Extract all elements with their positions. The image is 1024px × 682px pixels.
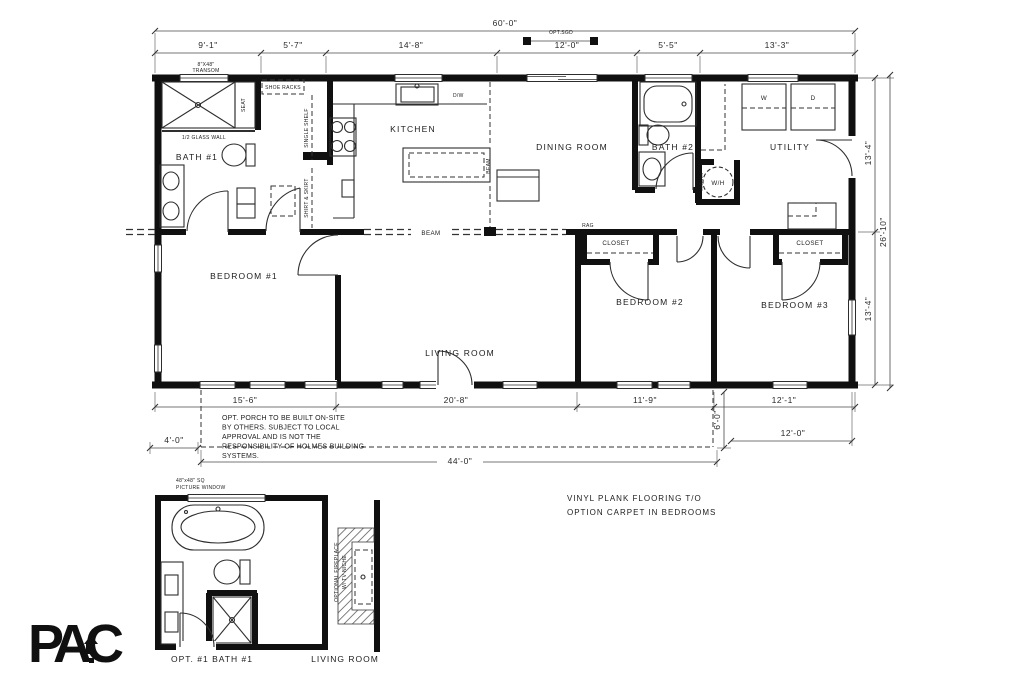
bedroom1-door [298, 235, 338, 275]
porch-note-line1: OPT. PORCH TO BE BUILT ON-SITE [222, 415, 345, 422]
seat-label: SEAT [241, 98, 247, 112]
shirt-skirt-label: SHIRT & SKIRT [304, 178, 310, 217]
single-shelf-label: SINGLE SHELF [304, 108, 310, 147]
dim-right-bottom: 13'-4" [863, 297, 873, 322]
beam-vertical-label: BEAM [486, 158, 492, 173]
porch-note-line4: RESPONSIBILITY OF HOLMES BUILDING [222, 444, 364, 451]
dim-bottom-seg2: 20'-8" [444, 395, 469, 405]
rag-label: RAG [582, 223, 594, 229]
top-dimensions: 60'-0" 9'-1" 5'-7" 14'-8" 12'-0" 5'-5" 1… [152, 18, 858, 73]
porch-note: OPT. PORCH TO BE BUILT ON-SITE BY OTHERS… [222, 415, 364, 460]
dim-patio-depth: 6'-0" [712, 410, 722, 429]
room-label-living: LIVING ROOM [425, 348, 495, 358]
flooring-note-line2: OPTION CARPET IN BEDROOMS [567, 508, 716, 517]
floor-plan-drawing: BATH #1 KITCHEN DINING ROOM BATH #2 UTIL… [0, 0, 1024, 682]
dim-top-seg6: 13'-3" [765, 40, 790, 50]
logo-house-dot-icon [89, 658, 94, 663]
bedroom3-door [718, 236, 750, 268]
bedroom2-door [677, 236, 703, 262]
fireplace-label-line1: OPTIONAL FIREPLACE [334, 542, 340, 602]
washer-label: W [761, 95, 767, 102]
room-label-kitchen: KITCHEN [390, 124, 436, 134]
kitchen-fixtures [330, 84, 539, 218]
shoe-racks-label: SHOE RACKS [265, 85, 301, 91]
shelves-label: SHELVES [699, 173, 704, 191]
room-label-bedroom1: BEDROOM #1 [210, 271, 278, 281]
picture-window-label-line2: PICTURE WINDOW [176, 485, 225, 491]
room-label-bath2: BATH #2 [652, 142, 694, 152]
porch-note-line3: APPROVAL AND IS NOT THE [222, 434, 321, 441]
dim-top-seg4: 12'-0" [555, 40, 580, 50]
dim-top-seg3: 14'-8" [399, 40, 424, 50]
room-label-bedroom3: BEDROOM #3 [761, 300, 829, 310]
interior-walls [158, 78, 852, 385]
picture-window-label-line1: 48"x48" SQ [176, 478, 205, 484]
porch-note-line2: BY OTHERS. SUBJECT TO LOCAL [222, 425, 340, 432]
bath1-door [187, 191, 228, 232]
right-dimensions: 13'-4" 13'-4" 26'-10" [858, 72, 894, 391]
utility-exterior-door [816, 136, 857, 178]
opt-bath-detail: 48"x48" SQ PICTURE WINDOW [158, 478, 325, 664]
optional-sliding-glass-door [527, 73, 597, 83]
porch-note-line5: SYSTEMS. [222, 453, 259, 460]
bath2-fixtures [639, 82, 696, 186]
vanity-bath1 [160, 165, 184, 227]
logo-house-body-icon [86, 644, 95, 654]
dim-bottom-seg4: 12'-1" [772, 395, 797, 405]
glass-wall-label: 1/2 GLASS WALL [182, 135, 226, 141]
dim-top-seg5: 5'-5" [658, 40, 677, 50]
dim-porch-width: 44'-0" [448, 456, 473, 466]
opt-sgd-label: OPT.SGD [549, 30, 573, 36]
room-labels: BATH #1 KITCHEN DINING ROOM BATH #2 UTIL… [176, 124, 829, 358]
dim-right-overall: 26'-10" [878, 217, 888, 247]
utility-fixtures [701, 84, 836, 229]
freestanding-tub [172, 505, 264, 550]
dim-overall-width: 60'-0" [493, 18, 518, 28]
closet2-door [610, 262, 648, 300]
closet2-label: CLOSET [602, 240, 629, 247]
dim-bottom-seg3: 11'-9" [633, 395, 657, 405]
dim-bottom-seg1: 15'-6" [233, 395, 258, 405]
pac-logo: PAC [28, 614, 123, 674]
bath2-door [656, 153, 693, 190]
dim-porch-depth: 4'-0" [164, 435, 183, 445]
dishwasher-label: D/W [453, 93, 464, 99]
shower-detail [207, 593, 257, 645]
fireplace-detail: OPTIONAL FIREPLACE W/ TV NICHE LIVING RO… [311, 500, 379, 664]
dim-patio-width: 12'-0" [781, 428, 806, 438]
pac-logo-text: PAC [28, 614, 123, 674]
room-label-dining: DINING ROOM [536, 142, 608, 152]
dim-top-seg2: 5'-7" [283, 40, 302, 50]
floor-plan-page: BATH #1 KITCHEN DINING ROOM BATH #2 UTIL… [0, 0, 1024, 682]
toilet-bath1 [222, 144, 255, 166]
flooring-note: VINYL PLANK FLOORING T/O OPTION CARPET I… [567, 494, 716, 517]
doors [187, 136, 857, 390]
room-label-utility: UTILITY [770, 142, 810, 152]
transom-label-line2: TRANSOM [192, 68, 219, 74]
dryer-label: D [811, 95, 816, 102]
beam-horizontal-label: BEAM [421, 230, 440, 237]
closet3-label: CLOSET [796, 240, 823, 247]
toilet-detail [214, 560, 250, 584]
flooring-note-line1: VINYL PLANK FLOORING T/O [567, 494, 702, 503]
dim-top-seg1: 9'-1" [198, 40, 217, 50]
fireplace-caption: LIVING ROOM [311, 654, 379, 664]
room-label-bedroom2: BEDROOM #2 [616, 297, 684, 307]
wardrobe-fixtures [237, 80, 312, 228]
opt-bath-caption: OPT. #1 BATH #1 [171, 654, 253, 664]
fireplace-label-line2: W/ TV NICHE [342, 555, 348, 589]
closet3-door [782, 262, 820, 300]
dim-right-top: 13'-4" [863, 141, 873, 166]
room-label-bath1: BATH #1 [176, 152, 218, 162]
water-heater-label: W/H [711, 180, 724, 187]
